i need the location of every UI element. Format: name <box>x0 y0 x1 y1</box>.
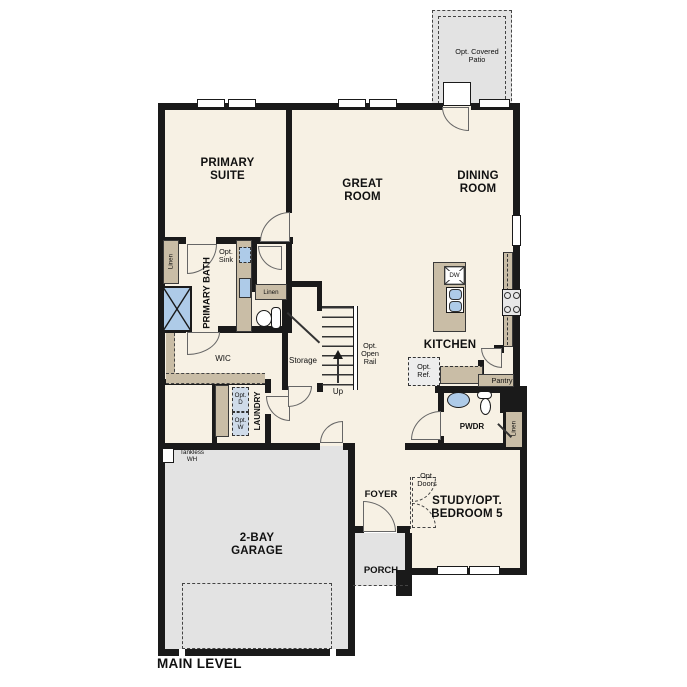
room-label-primary-suite: PRIMARY SUITE <box>185 155 270 185</box>
room-label-laundry: LAUNDRY <box>252 381 264 441</box>
label-linen-powder: Linen <box>509 409 520 449</box>
window <box>197 99 225 108</box>
tankless-water-heater <box>162 448 174 463</box>
opt-sink-basin <box>239 247 251 263</box>
garage-door-jamb <box>330 649 336 656</box>
plan-title: MAIN LEVEL <box>157 655 287 673</box>
up-arrow-head <box>333 350 343 359</box>
label-tankless-wh: Tankless WH <box>175 447 209 464</box>
opt-washer-label: Opt. W <box>233 416 248 432</box>
window <box>338 99 366 108</box>
wall <box>218 326 292 333</box>
opt-refrigerator: Opt. Ref. <box>408 357 440 386</box>
label-opt-sink: Opt. Sink <box>212 246 240 266</box>
burner <box>513 292 520 299</box>
room-label-dining-room: DINING ROOM <box>447 168 509 198</box>
opt-ref-label: Opt. Ref. <box>411 361 437 381</box>
wall <box>348 443 355 656</box>
stove <box>502 289 521 316</box>
powder-sink <box>447 392 470 408</box>
room-label-garage: 2-BAY GARAGE <box>226 529 288 561</box>
wall <box>265 379 271 393</box>
island-sink-basin <box>449 301 462 312</box>
dishwasher-label: DW <box>446 271 463 280</box>
room-label-patio: Opt. Covered Patio <box>449 45 505 67</box>
garage-door-outline <box>182 583 332 649</box>
wall <box>286 103 292 213</box>
toilet-tank <box>271 307 281 329</box>
burner <box>504 292 511 299</box>
burner <box>513 306 520 313</box>
wic-shelf <box>166 373 265 384</box>
shower-icon <box>162 286 192 332</box>
wall <box>405 533 412 575</box>
window <box>479 99 510 108</box>
wall <box>397 526 410 533</box>
island-sink-basin <box>449 289 462 300</box>
room-label-primary-bath: PRIMARY BATH <box>196 266 220 321</box>
window <box>469 566 500 575</box>
wic-shelf <box>166 333 175 377</box>
opt-dryer-label: Opt. D <box>233 391 248 407</box>
window <box>369 99 397 108</box>
room-label-foyer: FOYER <box>361 488 401 502</box>
window <box>512 215 521 246</box>
room-label-porch: PORCH <box>360 564 402 578</box>
room-label-pantry: Pantry <box>486 376 518 387</box>
label-opt-doors: Opt. Doors <box>412 471 442 489</box>
wall <box>520 443 527 575</box>
opt-washer: Opt. W <box>232 412 249 436</box>
patio-closet <box>443 82 471 106</box>
room-label-kitchen: KITCHEN <box>418 337 482 353</box>
label-linen-hall: Linen <box>255 286 287 298</box>
up-arrow-shaft <box>337 357 339 383</box>
window <box>437 566 468 575</box>
laundry-cabinet <box>215 385 229 437</box>
room-label-great-room: GREAT ROOM <box>330 176 395 206</box>
room-label-wic: WIC <box>206 353 240 365</box>
opt-counter <box>440 366 483 384</box>
label-opt-open-rail: Opt. Open Rail <box>354 336 386 372</box>
wall <box>438 386 444 412</box>
wall <box>513 103 520 393</box>
sink-basin <box>239 278 251 298</box>
room-label-powder: PWDR <box>454 421 490 433</box>
opt-door-wall-line <box>410 477 411 529</box>
window <box>228 99 256 108</box>
burner <box>504 306 511 313</box>
opt-dryer: Opt. D <box>232 387 249 412</box>
porch-edge-line <box>353 583 408 586</box>
floor-plan: Opt. Covered Patio <box>0 0 687 687</box>
wall <box>282 288 288 390</box>
label-up: Up <box>328 386 348 398</box>
label-linen-left: Linen <box>166 242 177 282</box>
wall <box>265 414 271 443</box>
room-label-storage: Storage <box>285 355 321 367</box>
toilet-bowl <box>256 310 272 327</box>
room-label-study: STUDY/OPT. BEDROOM 5 <box>421 492 513 524</box>
toilet-bowl <box>480 398 491 415</box>
wall <box>288 281 320 287</box>
